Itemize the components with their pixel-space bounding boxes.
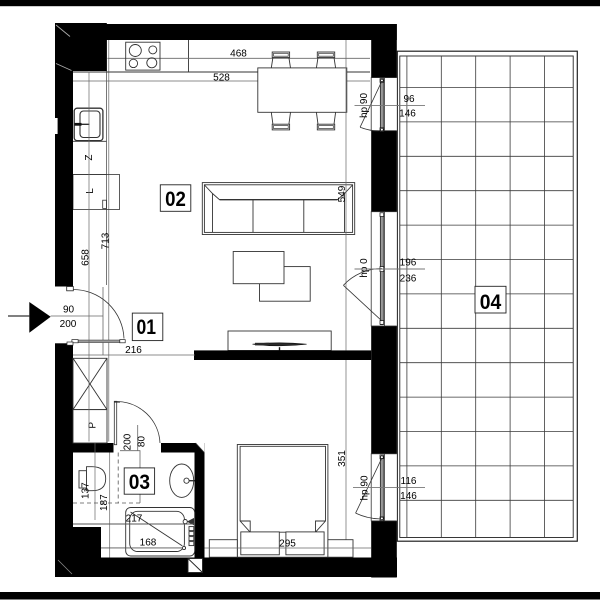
svg-text:hp 0: hp 0 <box>359 258 370 278</box>
svg-text:187: 187 <box>99 494 110 511</box>
svg-text:216: 216 <box>125 345 142 356</box>
svg-text:217: 217 <box>126 514 143 525</box>
svg-text:196: 196 <box>400 258 417 269</box>
svg-text:351: 351 <box>337 450 348 467</box>
svg-text:528: 528 <box>213 72 230 83</box>
svg-text:L: L <box>85 188 96 194</box>
svg-text:03: 03 <box>129 471 150 494</box>
svg-text:200: 200 <box>60 319 77 330</box>
svg-text:146: 146 <box>400 491 417 502</box>
svg-text:236: 236 <box>400 274 417 285</box>
svg-text:90: 90 <box>63 305 75 316</box>
svg-text:04: 04 <box>480 291 502 314</box>
svg-text:713: 713 <box>100 232 111 249</box>
svg-text:468: 468 <box>230 49 247 60</box>
svg-text:146: 146 <box>399 108 416 119</box>
svg-text:200: 200 <box>123 433 134 450</box>
svg-text:01: 01 <box>136 316 156 339</box>
svg-text:295: 295 <box>279 538 296 549</box>
svg-text:116: 116 <box>401 476 417 487</box>
svg-text:658: 658 <box>80 249 91 266</box>
svg-text:96: 96 <box>403 94 415 105</box>
svg-text:02: 02 <box>165 188 186 211</box>
svg-text:137: 137 <box>81 482 92 499</box>
svg-text:549: 549 <box>337 185 348 202</box>
svg-text:168: 168 <box>140 537 157 548</box>
svg-text:80: 80 <box>137 436 148 448</box>
